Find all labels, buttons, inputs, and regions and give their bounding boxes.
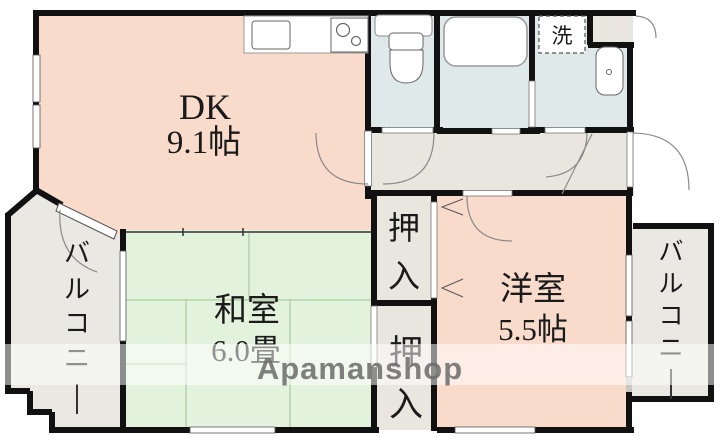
doorway-toilet [382, 128, 433, 134]
stove-burner-small-icon [352, 37, 361, 46]
doorway-bath-washroom [529, 81, 535, 127]
closet-upper-opening [431, 202, 437, 298]
room-washitsu-floor [120, 230, 376, 430]
hallway-floor [368, 128, 634, 196]
doorway-youshitsu [463, 191, 512, 197]
kitchen-sink [252, 21, 290, 49]
pipe-space-box [590, 13, 632, 45]
stove [331, 18, 368, 52]
doorway-entrance [627, 132, 633, 187]
dk-size-label: 9.1帖 [167, 124, 241, 161]
youshitsu-size-label: 5.5帖 [498, 312, 568, 347]
toilet-bowl [390, 50, 423, 83]
stove-burner-large-icon [337, 24, 350, 37]
window-dk-left-upper [33, 55, 40, 102]
washitsu-label: 和室 [214, 292, 280, 329]
window-youshitsu-bottom [455, 427, 535, 433]
window-youshitsu-right-upper [626, 255, 632, 316]
youshitsu-label: 洋室 [500, 271, 566, 308]
closet-lower-label-char2: 入 [389, 387, 423, 424]
laundry-label: 洗 [552, 24, 573, 48]
balcony-left-char3: コ [64, 309, 90, 338]
room-youshitsu-floor [437, 192, 632, 430]
closet-upper-label-char2: 入 [388, 258, 420, 294]
balcony-left-char2: ル [64, 275, 90, 304]
balcony-right-char2: ル [658, 271, 683, 298]
closet-upper-label-char1: 押 [388, 210, 420, 246]
window-dk-left-lower [33, 105, 40, 148]
doorway-washroom [545, 128, 585, 134]
bathtub [444, 17, 527, 66]
balcony-right-char3: コ [658, 303, 683, 330]
doorway-dk [365, 131, 372, 186]
dk-label: DK [179, 87, 231, 127]
washbasin-drain-icon [607, 70, 612, 75]
toilet-tank [389, 33, 423, 50]
floorplan-image: DK 9.1帖 和室 6.0畳 洋室 5.5帖 押 入 押 入 洗 バ ル コ … [0, 0, 720, 439]
window-washitsu-bottom [190, 427, 275, 433]
floorplan-svg: DK 9.1帖 和室 6.0畳 洋室 5.5帖 押 入 押 入 洗 バ ル コ … [0, 0, 720, 439]
watermark-text: Apamanshop [257, 351, 463, 386]
window-washitsu-left [120, 251, 126, 341]
doorway-bath [492, 129, 520, 135]
balcony-left-char1: バ [64, 239, 90, 268]
balcony-right-char1: バ [658, 239, 683, 266]
